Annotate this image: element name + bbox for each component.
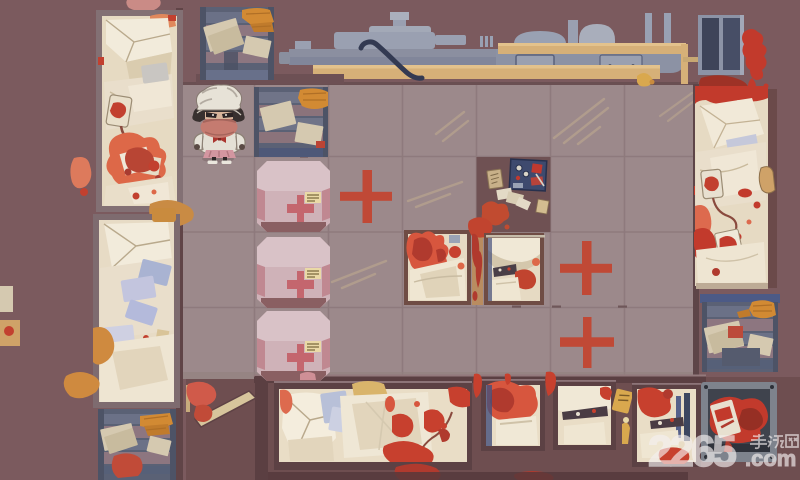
- svg-text:2265: 2265: [648, 427, 736, 476]
- svg-text:.com: .com: [745, 446, 796, 471]
